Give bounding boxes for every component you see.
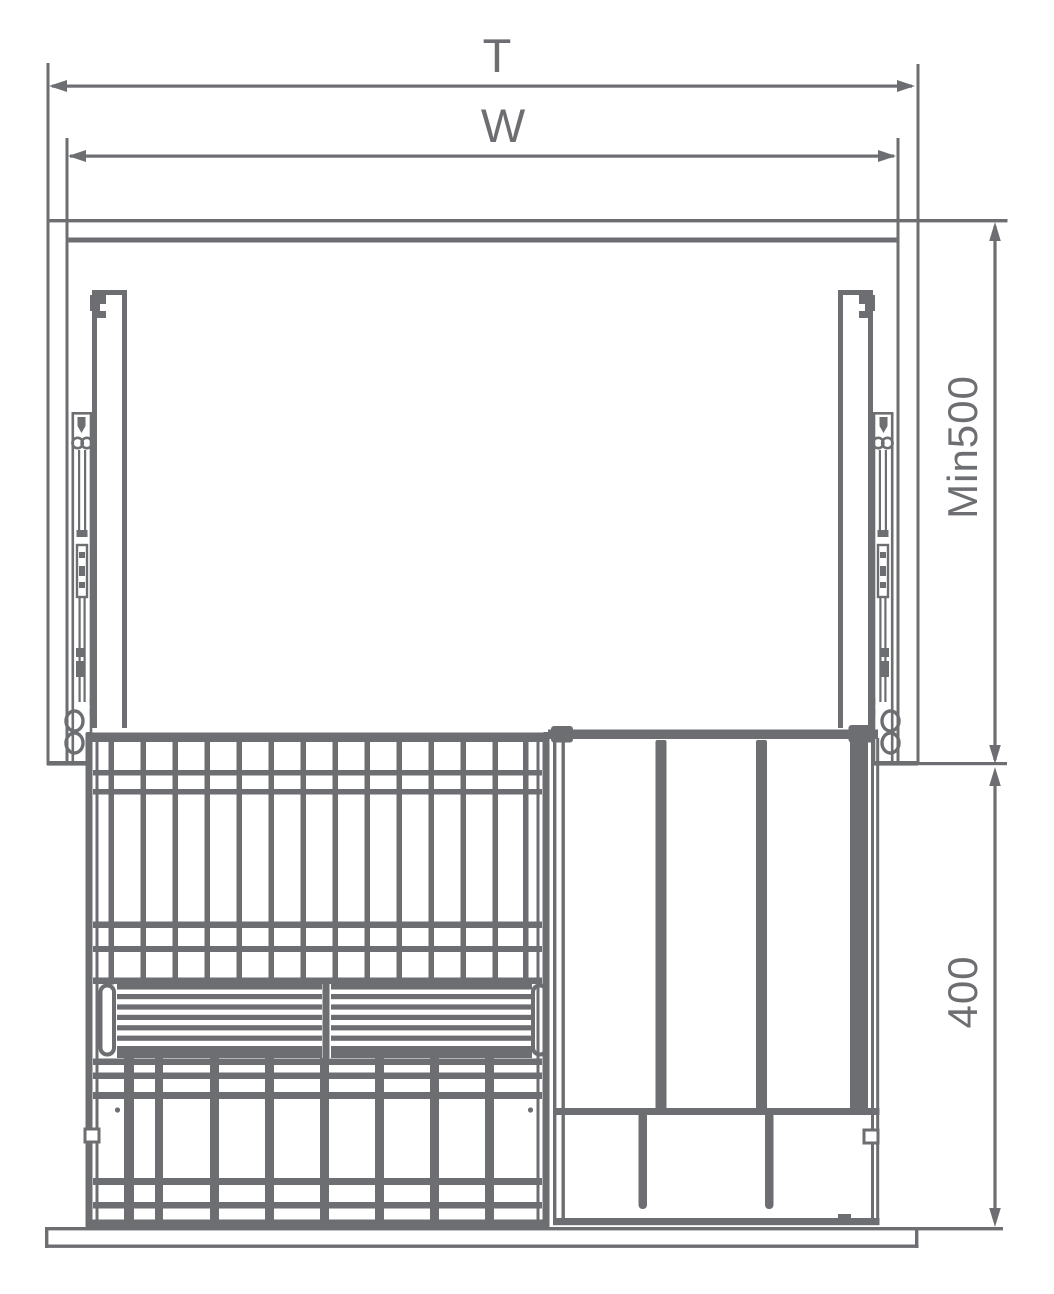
t-extension-left: [47, 63, 50, 220]
basket-lower-wires: [124, 1058, 494, 1224]
plinth-right-edge: [915, 1227, 918, 1248]
louver-panel: [101, 983, 547, 1059]
slide-rail-right: [838, 290, 918, 766]
technical-drawing: T W Min500 400: [0, 0, 1054, 1294]
cabinet-top-line: [47, 219, 1008, 222]
basket-right-post: [543, 732, 550, 1228]
tray-shelf-rail: [553, 1108, 880, 1115]
plinth: [45, 1227, 1003, 1248]
basket-bracket-icon: [85, 1129, 99, 1142]
t-arrow-right: [897, 80, 915, 92]
wire-basket: [85, 732, 550, 1228]
min500-arrow-down: [989, 745, 1001, 764]
tray-right-wall: [850, 740, 868, 1115]
w-arrow-right: [878, 150, 896, 162]
min500-dimension-line: [993, 226, 996, 760]
plinth-bottom-line: [45, 1245, 919, 1248]
technical-drawing-page: T W Min500 400: [0, 0, 1054, 1294]
dim400-label: 400: [939, 955, 986, 1028]
plinth-top-line: [45, 1227, 1003, 1230]
t-dimension-line: [52, 85, 912, 88]
rivet-icon: [115, 1107, 120, 1112]
cabinet-right-panel-outer: [917, 220, 920, 765]
divider-tray: [548, 725, 880, 1225]
drawing-root: T W Min500 400: [45, 29, 1008, 1248]
w-extension-right: [897, 138, 900, 220]
basket-top-rail: [86, 733, 550, 743]
louver-center-post: [323, 983, 330, 1059]
plinth-left-edge: [45, 1227, 48, 1248]
w-dimension-line: [70, 155, 894, 158]
spring-icon: [66, 711, 83, 753]
t-label: T: [483, 29, 512, 82]
tray-bracket-icon: [864, 1130, 878, 1143]
dim400-arrow-up: [989, 767, 1001, 786]
dimension-w: W: [66, 99, 900, 220]
min500-arrow-up: [989, 222, 1001, 241]
w-label: W: [481, 99, 526, 152]
dim400-arrow-down: [989, 1208, 1001, 1227]
tray-bottom-rail: [553, 1218, 880, 1225]
cabinet-left-panel-inner: [66, 220, 69, 765]
min500-label: Min500: [939, 375, 986, 519]
louver-left-cap: [101, 986, 115, 1055]
cabinet-left-panel-outer: [47, 220, 50, 765]
dimension-400: 400: [939, 767, 1001, 1227]
tray-stub-1: [639, 1112, 648, 1209]
tray-stub-2: [765, 1112, 774, 1209]
tray-top-cap-right: [849, 725, 875, 743]
t-arrow-left: [49, 80, 67, 92]
tray-divider-1: [656, 740, 667, 1109]
basket-left-post: [86, 732, 93, 1228]
tray-top-rail: [548, 730, 878, 740]
w-extension-left: [66, 138, 69, 220]
slide-rail-left: [47, 290, 127, 766]
t-extension-right: [917, 64, 920, 220]
dim400-dimension-line: [993, 783, 996, 1211]
w-arrow-left: [68, 150, 86, 162]
cabinet-right-panel-inner: [897, 220, 900, 765]
rivet-icon: [528, 1107, 533, 1112]
tray-divider-2: [756, 740, 767, 1109]
dimension-min500: Min500: [898, 222, 1007, 765]
cabinet-top-inner-line: [66, 238, 898, 243]
